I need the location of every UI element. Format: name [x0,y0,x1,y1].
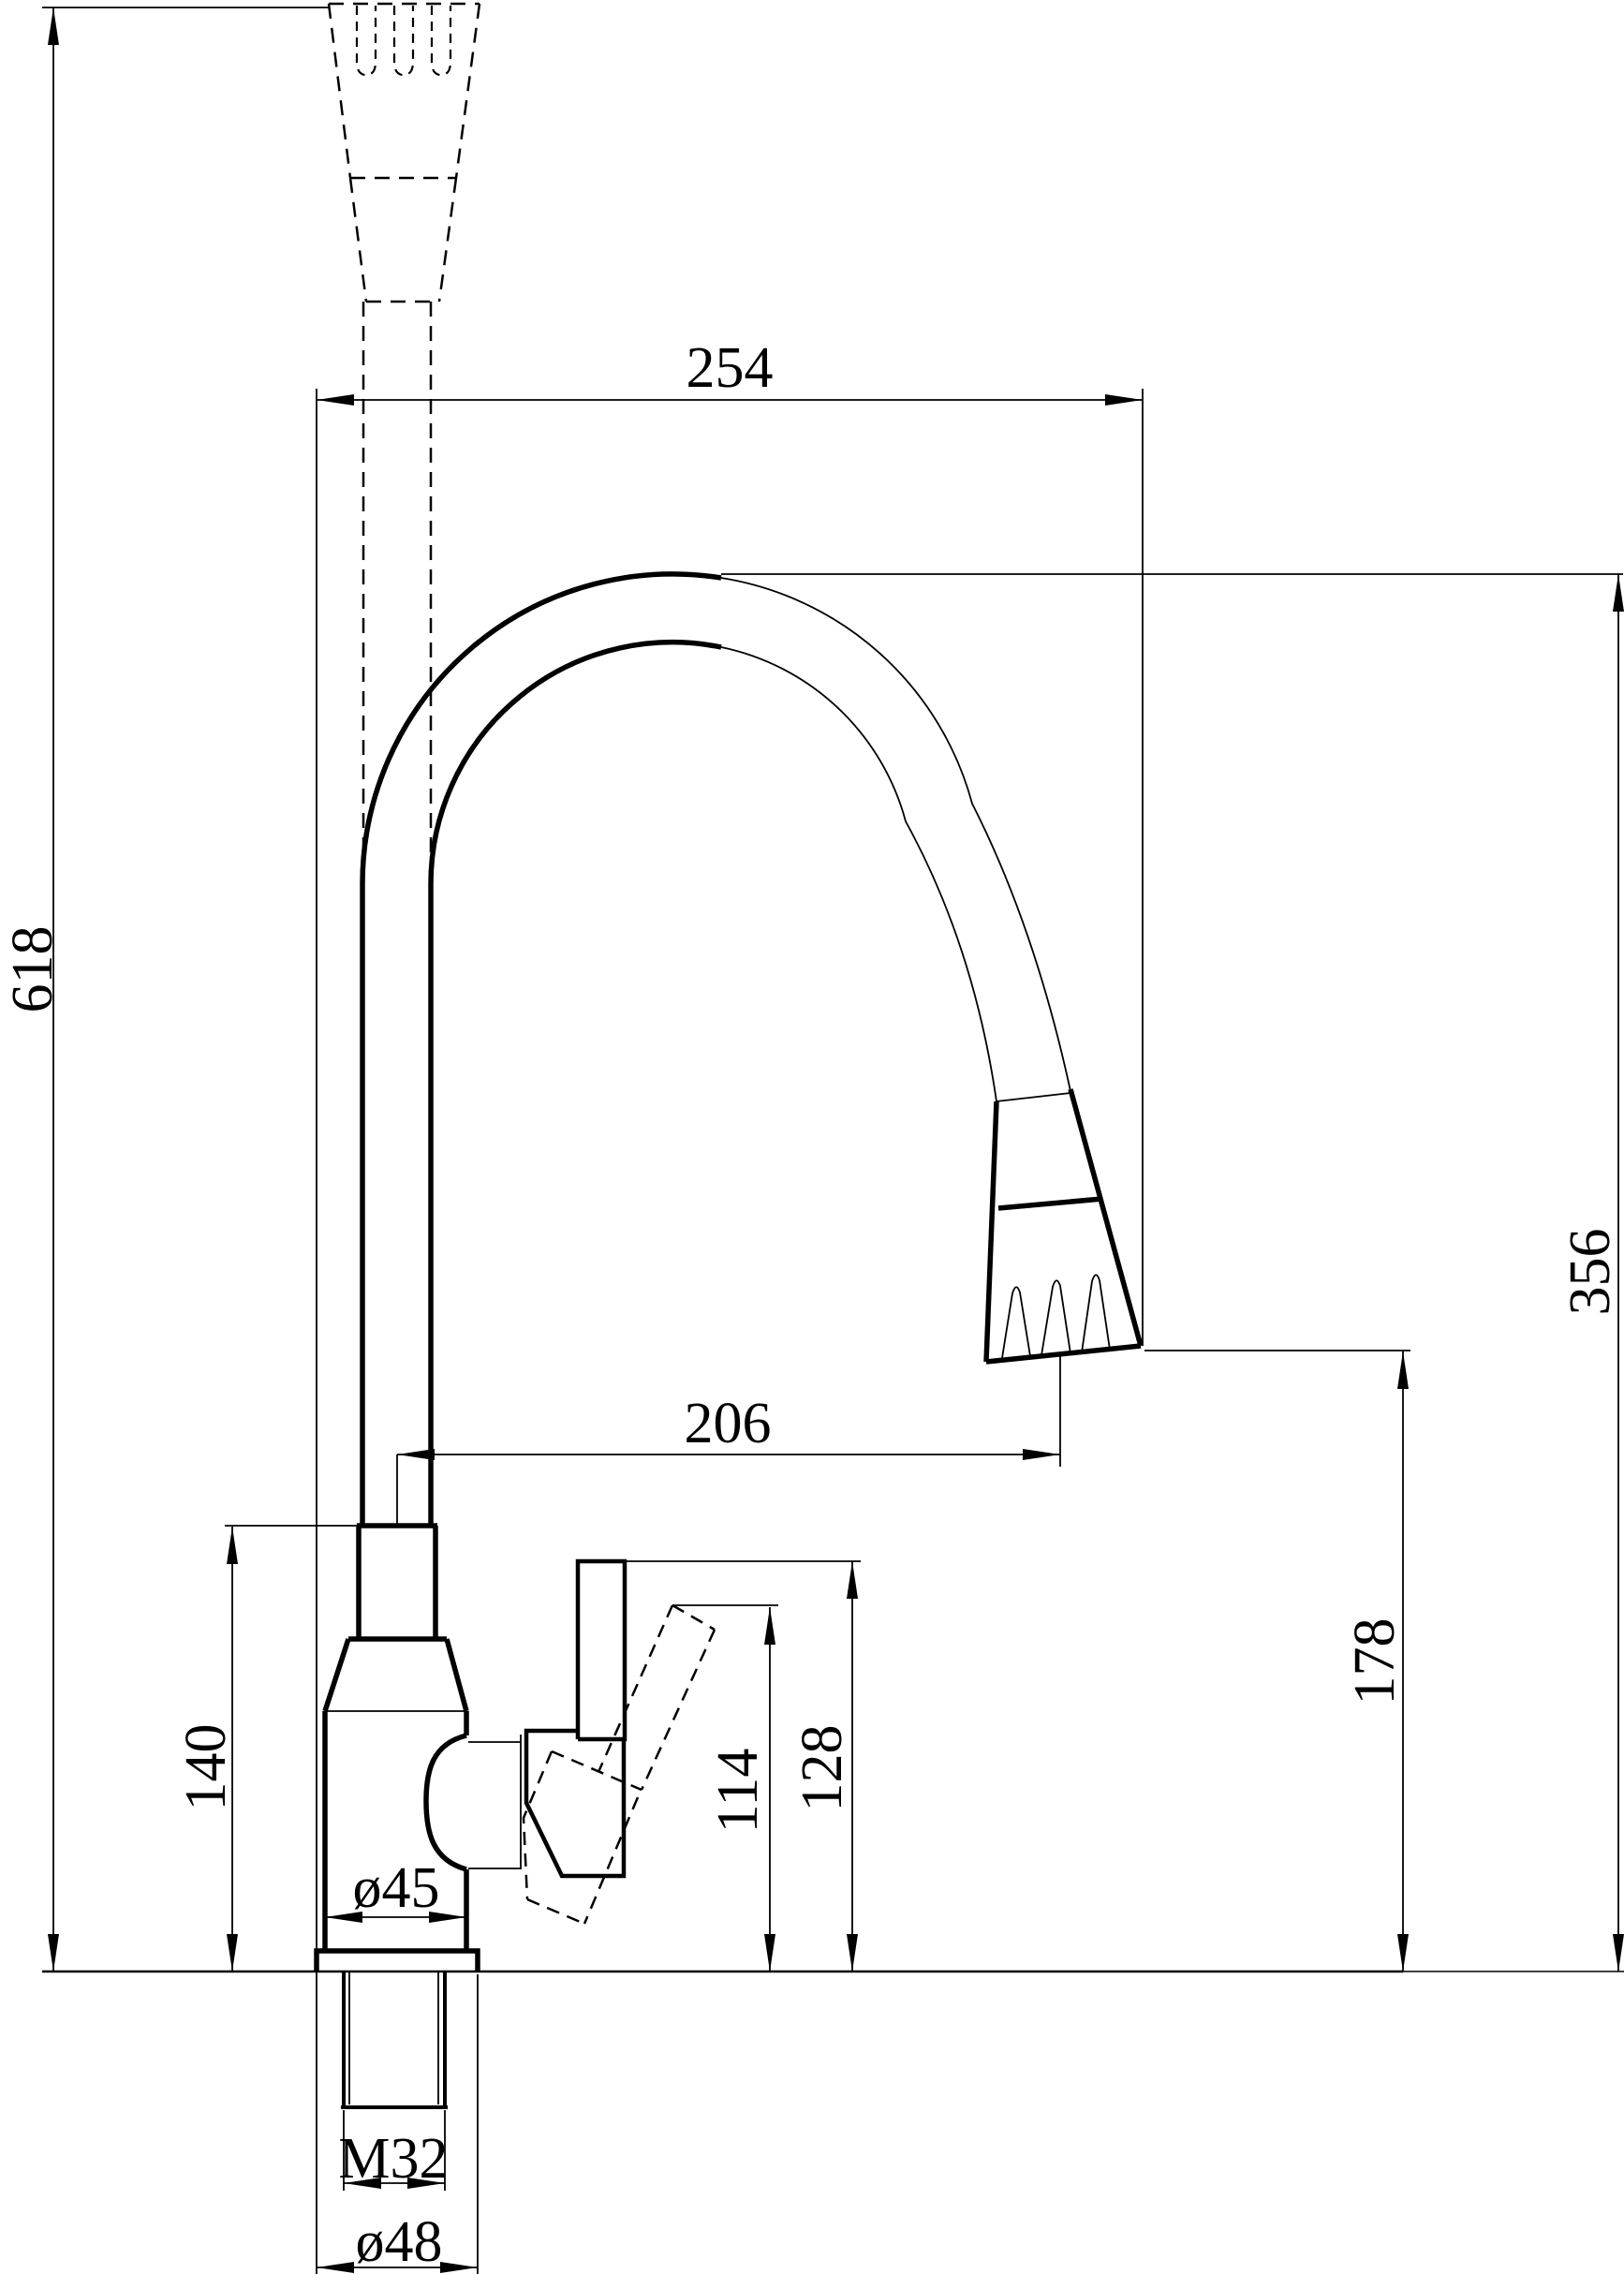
spout-inner-thin [721,647,997,1101]
cone-right-edge [447,1639,466,1711]
phantom-handle-bar-right [642,1630,715,1790]
arrowhead-178-top [1397,1351,1409,1389]
handle-base [526,1731,624,1876]
label-114: 114 [706,1749,770,1834]
phantom-handle-base-bottom [527,1899,584,1924]
arrowhead-114-top [764,1607,775,1645]
phantom-head-right-upper [456,4,480,178]
label-m32: M32 [338,2127,448,2191]
phantom-handle-bar-left [598,1605,672,1772]
arrowhead-618-top [48,7,59,45]
phantom-handle-base-top [552,1751,642,1790]
mounting-flange [317,1951,478,1971]
arrowhead-356-bottom [1613,1934,1624,1971]
arrowhead-206-right [1023,1449,1060,1460]
arrowhead-178-bottom [1397,1934,1409,1971]
lever-boss-dome [426,1735,466,1869]
extension-lines [42,7,1623,2274]
drawing-page: 254 618 356 206 178 140 114 128 ø45 M32 … [0,0,1624,2274]
cone-left-edge [325,1639,348,1711]
label-128: 128 [790,1725,854,1812]
arrowhead-48-right [440,2262,478,2273]
head-bottom-edge [986,1346,1141,1362]
head-top-edge [997,1093,1070,1101]
arrowhead-140-top [227,1527,238,1564]
label-dia48: ø48 [356,2210,443,2274]
label-618: 618 [1,926,65,1013]
spray-head-phantom [329,4,480,925]
phantom-head-left-upper [329,4,350,178]
arrowhead-128-bottom [847,1934,858,1971]
phantom-head-left-lower [350,178,366,302]
arrowhead-128-top [847,1561,858,1599]
arrowhead-114-bottom [764,1934,775,1971]
arrowhead-140-bottom [227,1934,238,1971]
dimension-lines [48,7,1624,2273]
spout-inner-arc [431,642,721,884]
arrowhead-206-left [397,1449,435,1460]
arrowhead-356-top [1613,574,1624,612]
phantom-handle-top-cap [672,1605,715,1630]
head-right-edge [1070,1089,1141,1346]
head-nozzle-teeth [1002,1275,1110,1358]
dimension-labels: 254 618 356 206 178 140 114 128 ø45 M32 … [1,336,1622,2274]
head-left-edge [986,1101,997,1362]
label-dia45: ø45 [353,1856,440,1920]
label-254: 254 [687,336,774,400]
phantom-handle-base-right [584,1797,638,1924]
spray-head-solid [986,1089,1141,1362]
handle-bar [578,1561,625,1739]
spout-outer-thin [721,578,1070,1091]
spout-outer-arc [362,574,721,884]
arrowhead-254-left [317,394,354,406]
label-206: 206 [685,1392,772,1455]
arrowhead-618-bottom [48,1934,59,1971]
arrowhead-254-right [1105,394,1143,406]
phantom-head-right-lower [439,178,456,302]
label-356: 356 [1558,1229,1622,1316]
faucet-technical-drawing: 254 618 356 206 178 140 114 128 ø45 M32 … [0,0,1624,2274]
phantom-nozzle-teeth [357,6,450,75]
label-140: 140 [174,1724,238,1811]
label-178: 178 [1343,1618,1407,1705]
arrowhead-48-left [317,2262,354,2273]
head-mid-line [998,1199,1102,1208]
